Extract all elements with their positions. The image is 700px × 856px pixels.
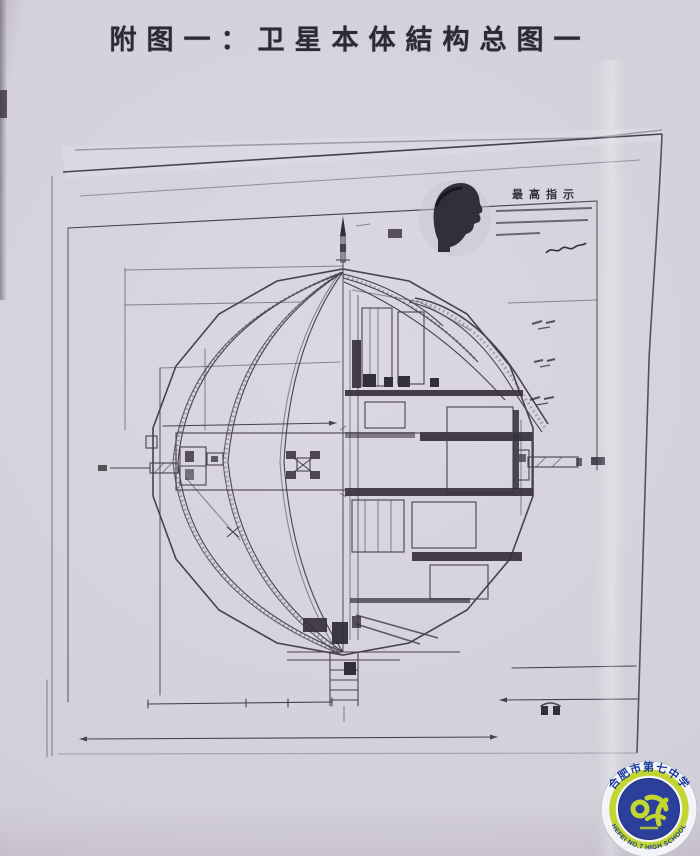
sheet-border — [52, 134, 662, 756]
paper-fold-highlight — [596, 60, 626, 856]
apex-tiny-note — [356, 224, 370, 226]
x-reference-mark — [227, 527, 239, 537]
apex-antenna — [336, 216, 402, 262]
side-label-mark — [532, 321, 555, 329]
mao-signature — [546, 243, 586, 253]
clamp-symbol — [541, 703, 560, 715]
equipment-shelf — [345, 390, 523, 396]
photo-left-shadow — [0, 0, 7, 300]
left-shell-fitting — [146, 436, 157, 448]
apex-note-mark — [388, 229, 402, 238]
meridian-ribs-left — [173, 272, 343, 654]
band-x-assembly — [286, 451, 320, 479]
separation-ladder — [287, 616, 460, 722]
antenna-boom-right — [528, 457, 605, 467]
quote-heading: 最高指示 — [512, 187, 580, 201]
paper-edge-mark — [0, 90, 7, 118]
photographed-blueprint-page: 附图一：卫星本体結构总图一 — [0, 0, 700, 856]
satellite-drawing — [98, 216, 605, 722]
antenna-boom-left — [98, 436, 178, 473]
quote-text-lines — [496, 208, 592, 235]
paper-artifacts — [0, 0, 662, 300]
bottom-struts — [356, 615, 438, 644]
side-label-marks — [530, 321, 555, 405]
blueprint-drawing: 最高指示 合肥市第七中学 HEFEI NO.7 HIGH — [0, 0, 700, 856]
battery-pack-panel — [447, 407, 513, 493]
side-label-mark — [534, 359, 555, 367]
internal-equipment — [345, 295, 548, 644]
